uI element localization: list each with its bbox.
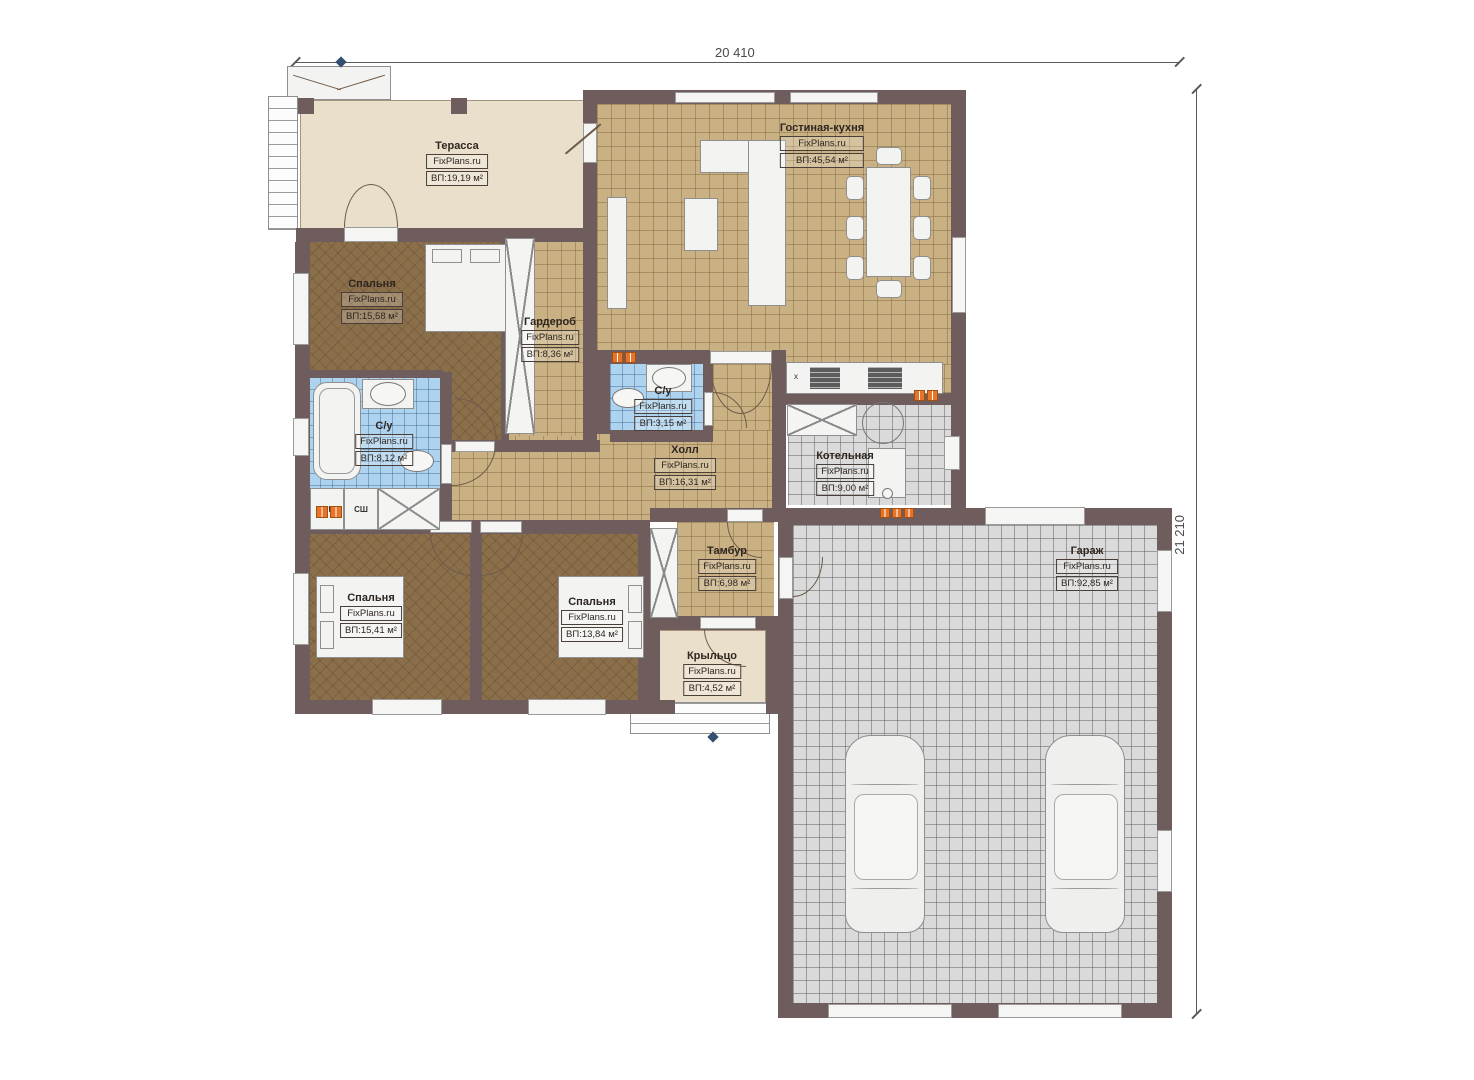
area-box: ВП:45,54 м² (780, 153, 864, 168)
room-name: Тамбур (698, 545, 756, 557)
area-box: ВП:8,36 м² (521, 347, 579, 362)
room-label-bedroom-3: Спальня FixPlans.ru ВП:13,84 м² (561, 596, 623, 642)
room-label-porch: Крыльцо FixPlans.ru ВП:4,52 м² (683, 650, 741, 696)
awning (287, 66, 391, 100)
door-opening (727, 509, 763, 522)
room-name: Терасса (426, 140, 488, 152)
stove-mark: х (794, 372, 798, 381)
bathtub (313, 382, 361, 480)
room-label-wardrobe: Гардероб FixPlans.ru ВП:8,36 м² (521, 316, 579, 362)
brand-box: FixPlans.ru (654, 458, 716, 473)
pillow (432, 249, 462, 263)
door-opening (704, 392, 713, 426)
window (944, 436, 960, 470)
area-box: ВП:9,00 м² (816, 481, 874, 496)
dimension-width-label: 20 410 (715, 45, 755, 60)
chair (876, 280, 902, 298)
room-name: Котельная (816, 450, 874, 462)
area-box: ВП:4,52 м² (683, 681, 741, 696)
dimension-height-label: 21 210 (1172, 515, 1187, 555)
boiler-valve (882, 488, 893, 499)
brand-box: FixPlans.ru (340, 606, 402, 621)
terrace-post (451, 98, 467, 114)
room-name: Гардероб (521, 316, 579, 328)
bathtub-inner (319, 388, 355, 474)
brand-box: FixPlans.ru (698, 559, 756, 574)
window (675, 92, 775, 103)
exterior-stairs (268, 96, 298, 230)
garage-window (985, 507, 1085, 525)
rear-window-line (1051, 888, 1120, 889)
brand-box: FixPlans.ru (1056, 559, 1118, 574)
terrace-door-opening (344, 227, 398, 242)
rear-window-line (851, 888, 920, 889)
coffee-table (684, 198, 718, 251)
brand-box: FixPlans.ru (634, 399, 692, 414)
area-box: ВП:15,58 м² (341, 309, 403, 324)
door-opening (779, 557, 793, 599)
area-box: ВП:15,41 м² (340, 623, 402, 638)
garage-door (828, 1004, 952, 1018)
window (528, 699, 606, 715)
car-roof (854, 794, 918, 880)
pillow (320, 621, 334, 649)
wall (772, 350, 786, 508)
windshield-line (1051, 784, 1120, 785)
area-box: ВП:8,12 м² (355, 451, 413, 466)
brand-box: FixPlans.ru (355, 434, 413, 449)
room-name: Холл (654, 444, 716, 456)
chair (846, 176, 864, 200)
garage-wall-top (778, 508, 1172, 525)
room-label-hall: Холл FixPlans.ru ВП:16,31 м² (654, 444, 716, 490)
window (293, 273, 309, 345)
sink (370, 382, 406, 406)
closet-cabinet (650, 528, 678, 618)
garage-window (1157, 830, 1172, 892)
pillow (470, 249, 500, 263)
vent-marker (612, 352, 623, 363)
brand-box: FixPlans.ru (816, 464, 874, 479)
bath-cabinet (378, 488, 440, 530)
brand-box: FixPlans.ru (426, 154, 488, 169)
room-name: С/у (634, 385, 692, 397)
window (952, 237, 966, 313)
room-name: Крыльцо (683, 650, 741, 662)
wall (766, 630, 778, 714)
chair (876, 147, 902, 165)
wall (650, 630, 660, 714)
vent-marker (892, 508, 902, 518)
pillow (628, 585, 642, 613)
room-label-bedroom-2: Спальня FixPlans.ru ВП:15,41 м² (340, 592, 402, 638)
car (1045, 735, 1125, 933)
room-label-tambur: Тамбур FixPlans.ru ВП:6,98 м² (698, 545, 756, 591)
room-name: Гостиная-кухня (780, 122, 864, 134)
boiler-tank (862, 402, 904, 444)
room-label-bathroom-main: С/у FixPlans.ru ВП:8,12 м² (355, 420, 413, 466)
kitchen-sink (810, 367, 840, 389)
car-roof (1054, 794, 1118, 880)
room-label-bedroom-master: Спальня FixPlans.ru ВП:15,58 м² (341, 278, 403, 324)
terrace-post (298, 98, 314, 114)
brand-box: FixPlans.ru (341, 292, 403, 307)
chair (846, 216, 864, 240)
garage-door (998, 1004, 1122, 1018)
window (790, 92, 878, 103)
vent-marker (316, 506, 328, 518)
room-name: Спальня (340, 592, 402, 604)
vent-marker (880, 508, 890, 518)
door-opening (700, 617, 756, 629)
pillow (628, 621, 642, 649)
area-box: ВП:16,31 м² (654, 475, 716, 490)
window (293, 573, 309, 645)
boiler-cabinet (787, 404, 857, 436)
chair (913, 216, 931, 240)
brand-box: FixPlans.ru (561, 610, 623, 625)
room-label-terrace: Терасса FixPlans.ru ВП:19,19 м² (426, 140, 488, 186)
window (372, 699, 442, 715)
room-name: Спальня (341, 278, 403, 290)
car (845, 735, 925, 933)
door-opening (441, 444, 452, 484)
wall (583, 366, 597, 442)
vent-marker (625, 352, 636, 363)
brand-box: FixPlans.ru (683, 664, 741, 679)
window (293, 418, 309, 456)
vent-marker (927, 390, 938, 401)
chair (913, 176, 931, 200)
chair (913, 256, 931, 280)
area-box: ВП:13,84 м² (561, 627, 623, 642)
brand-box: FixPlans.ru (780, 136, 864, 151)
dining-table (866, 167, 911, 277)
area-box: ВП:19,19 м² (426, 171, 488, 186)
wall (295, 700, 675, 714)
pillow (320, 585, 334, 613)
brand-box: FixPlans.ru (521, 330, 579, 345)
wall (296, 228, 597, 242)
room-name: Гараж (1056, 545, 1118, 557)
windshield-line (851, 784, 920, 785)
dimension-line-top (295, 62, 1180, 63)
room-label-boiler: Котельная FixPlans.ru ВП:9,00 м² (816, 450, 874, 496)
door-opening (710, 351, 772, 364)
kitchen-stove (868, 367, 902, 389)
room-name: С/у (355, 420, 413, 432)
area-box: ВП:92,85 м² (1056, 576, 1118, 591)
area-box: ВП:6,98 м² (698, 576, 756, 591)
vent-marker (914, 390, 925, 401)
wall (597, 362, 610, 434)
garage-window (1157, 550, 1172, 612)
drying-cabinet-label: СШ (344, 488, 378, 530)
vent-marker (330, 506, 342, 518)
door-opening (480, 521, 522, 533)
bed-master (425, 244, 507, 332)
room-label-living-kitchen: Гостиная-кухня FixPlans.ru ВП:45,54 м² (780, 122, 864, 168)
room-name: Спальня (561, 596, 623, 608)
wall (308, 370, 442, 378)
room-label-garage: Гараж FixPlans.ru ВП:92,85 м² (1056, 545, 1118, 591)
vent-marker (904, 508, 914, 518)
dimension-line-right (1196, 90, 1197, 1015)
area-box: ВП:3,15 м² (634, 416, 692, 431)
floor-plan-canvas: 20 410 21 210 (0, 0, 1474, 1080)
tv-stand (607, 197, 627, 309)
wall (610, 430, 713, 442)
room-label-bathroom-small: С/у FixPlans.ru ВП:3,15 м² (634, 385, 692, 431)
chair (846, 256, 864, 280)
